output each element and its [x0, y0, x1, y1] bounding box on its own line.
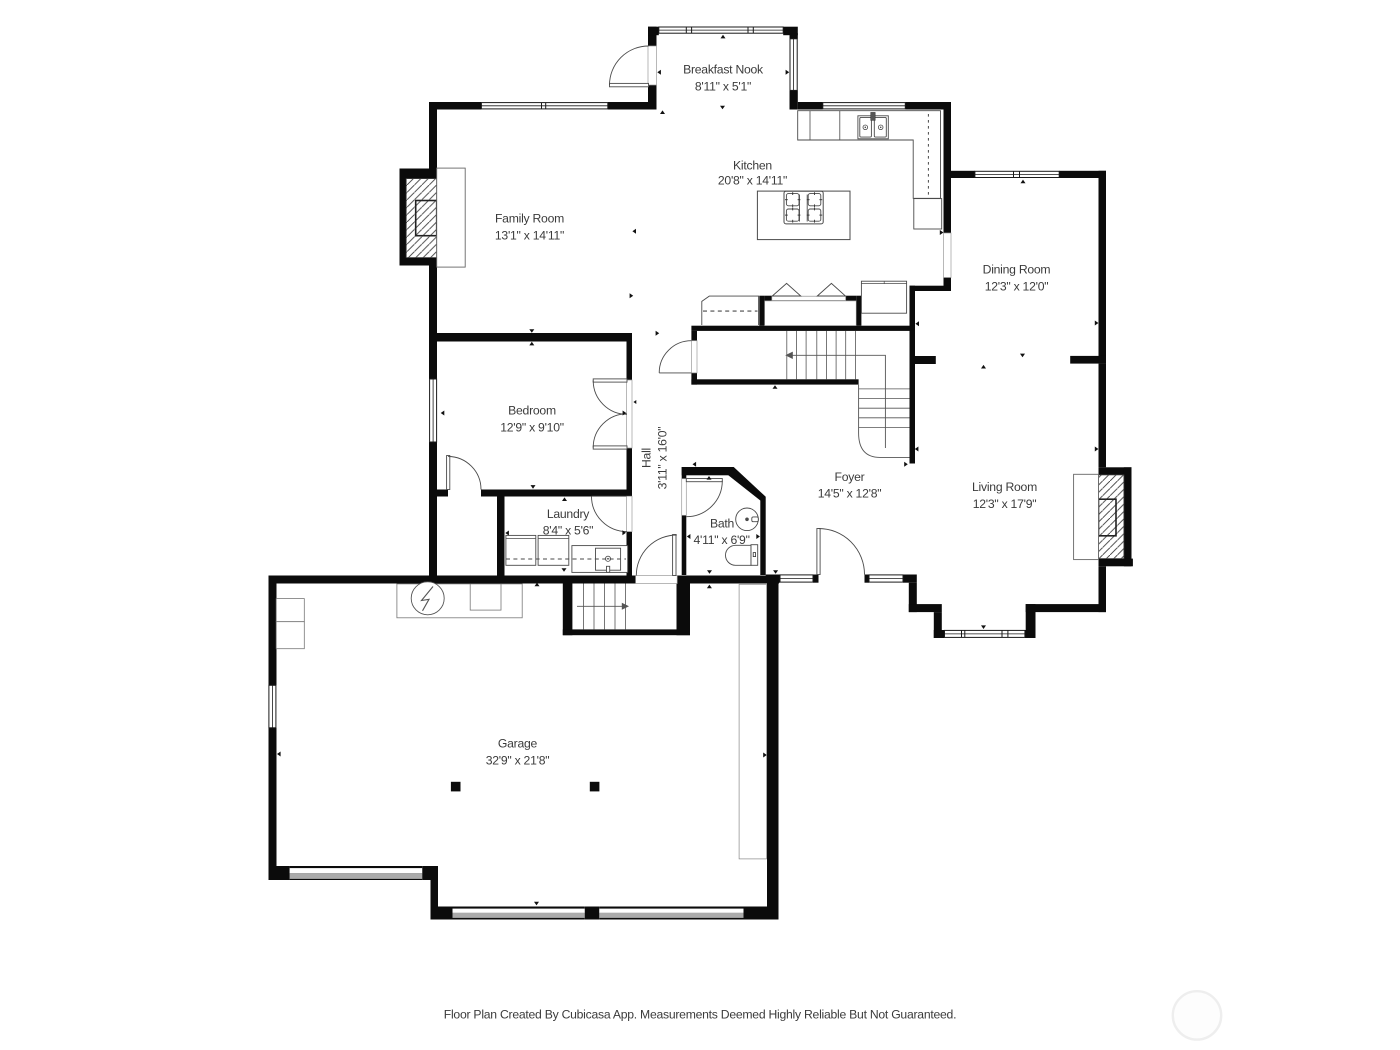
svg-text:Bath: Bath	[710, 516, 734, 530]
svg-text:3'11" x 16'0": 3'11" x 16'0"	[656, 427, 670, 490]
svg-text:8'4" x 5'6": 8'4" x 5'6"	[543, 524, 594, 538]
svg-text:Laundry: Laundry	[547, 507, 590, 521]
svg-text:Garage: Garage	[498, 737, 538, 751]
svg-text:14'5" x 12'8": 14'5" x 12'8"	[818, 487, 882, 501]
svg-text:8'11" x 5'1": 8'11" x 5'1"	[695, 80, 751, 94]
svg-text:12'9" x 9'10": 12'9" x 9'10"	[500, 421, 564, 435]
svg-text:12'3" x 17'9": 12'3" x 17'9"	[973, 497, 1037, 511]
svg-text:32'9" x 21'8": 32'9" x 21'8"	[486, 754, 550, 768]
svg-text:Floor Plan Created By Cubicasa: Floor Plan Created By Cubicasa App. Meas…	[444, 1008, 956, 1022]
svg-text:4'11" x 6'9": 4'11" x 6'9"	[694, 533, 750, 547]
svg-text:20'8" x 14'11": 20'8" x 14'11"	[718, 174, 787, 188]
svg-text:12'3" x 12'0": 12'3" x 12'0"	[985, 280, 1049, 294]
svg-text:Breakfast Nook: Breakfast Nook	[683, 63, 764, 77]
svg-text:Living Room: Living Room	[972, 480, 1037, 494]
svg-text:Foyer: Foyer	[835, 470, 865, 484]
svg-text:13'1" x 14'11": 13'1" x 14'11"	[495, 229, 564, 243]
svg-text:Hall: Hall	[640, 448, 654, 468]
svg-text:Family Room: Family Room	[495, 212, 564, 226]
svg-text:Dining Room: Dining Room	[983, 263, 1051, 277]
svg-text:Bedroom: Bedroom	[508, 404, 556, 418]
svg-text:Kitchen: Kitchen	[733, 159, 772, 173]
